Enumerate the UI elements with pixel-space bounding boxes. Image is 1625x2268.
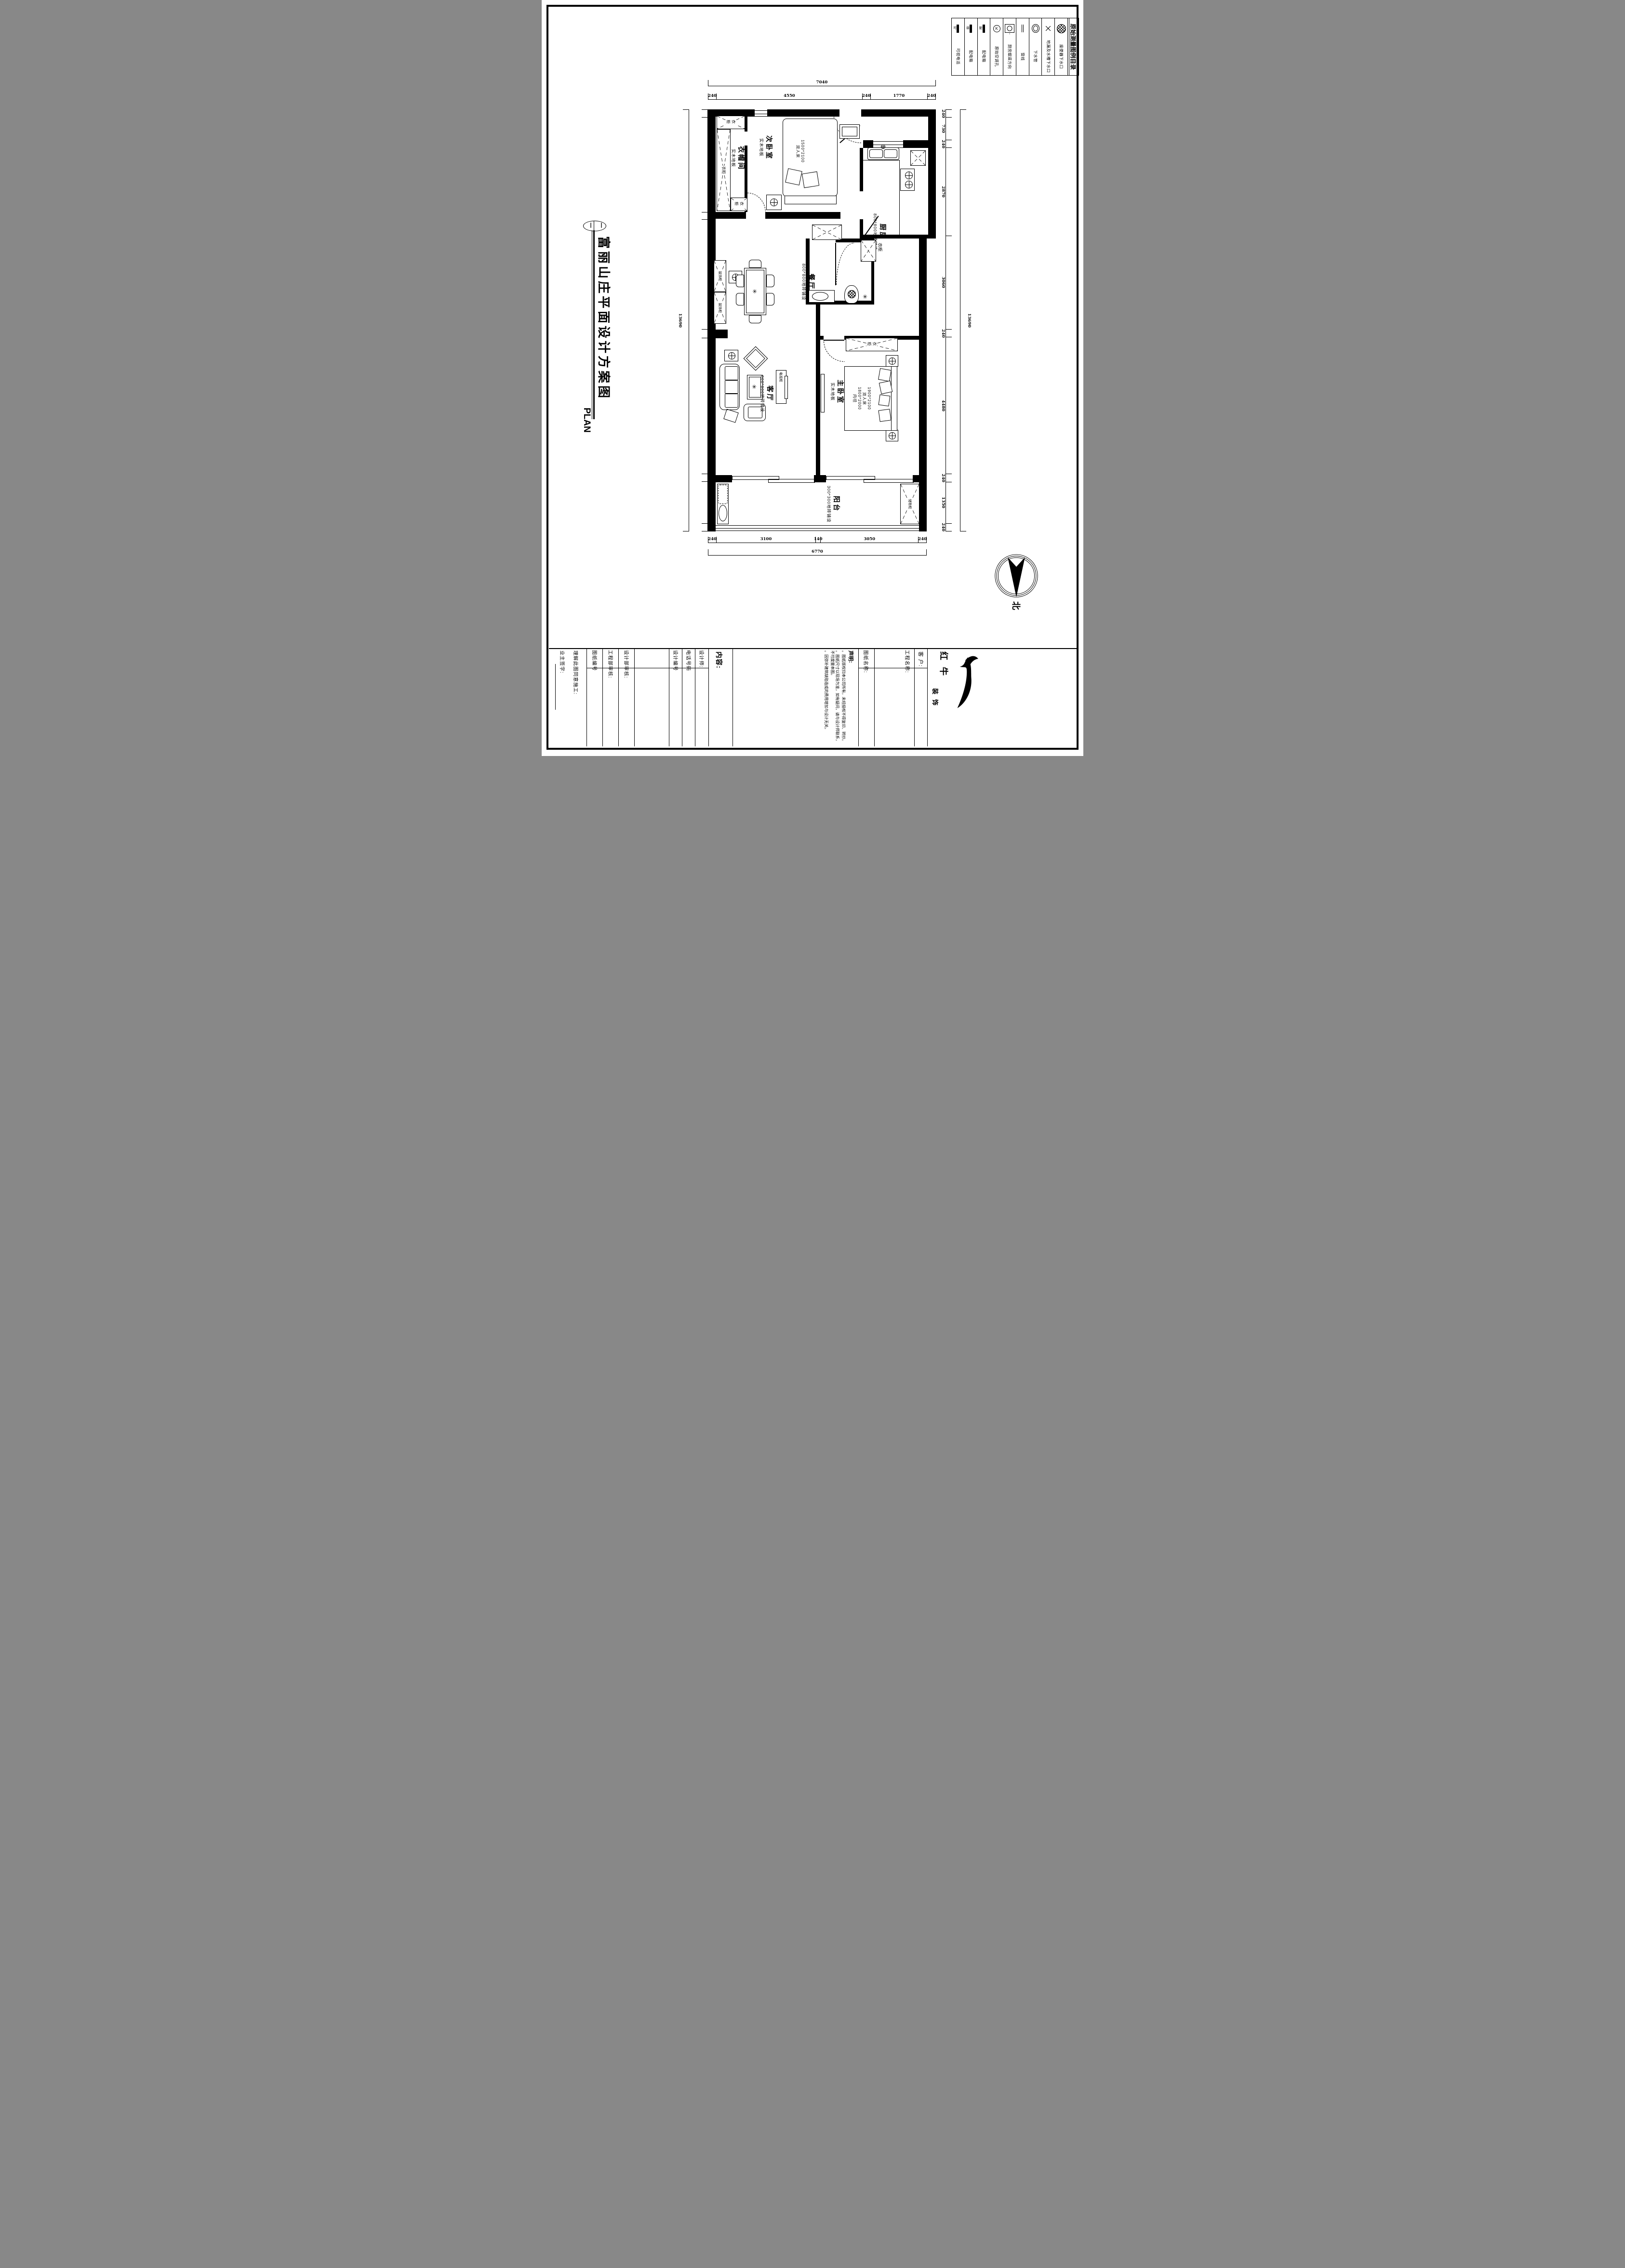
page-title: 富丽山庄平面设计方案图 — [596, 236, 613, 400]
legend-items: 座便器下水口地漏及水槽下水口下水管窗线↓厨房烟道方向K原始空调孔配配电箱弱配电箱… — [952, 18, 1067, 75]
legend-item-label: 窗线 — [1020, 39, 1025, 74]
toilet — [844, 285, 859, 304]
room-floor: 800*800地砖铺设 — [801, 254, 807, 309]
legend: 座便器下水口地漏及水槽下水口下水管窗线↓厨房烟道方向K原始空调孔配配电箱弱配电箱… — [951, 18, 1079, 76]
wall — [861, 109, 936, 117]
titleblock-divider — [669, 648, 669, 746]
power-box-icon: 配 — [978, 18, 990, 39]
lamp-icon — [889, 432, 896, 439]
sliding-door-panel — [864, 479, 914, 483]
speaker-box — [724, 350, 738, 361]
flue-shaft — [910, 150, 926, 166]
sofa-cushion — [725, 366, 738, 381]
dim-segment: 13690 — [960, 109, 966, 531]
wall — [767, 109, 839, 117]
wall — [860, 148, 863, 191]
dim-label: 240 — [862, 93, 871, 98]
storage-cabinet: 储物柜 — [900, 484, 919, 524]
client-label: 客 户: — [917, 651, 925, 667]
drain-pipe-icon — [1029, 18, 1042, 39]
pillow — [802, 172, 819, 188]
speaker-icon — [728, 352, 735, 359]
room-floor: 实木地板 — [759, 128, 764, 167]
titleblock-divider — [682, 648, 682, 746]
washing-machine — [718, 485, 728, 504]
dim-segment: 13690 — [683, 109, 689, 531]
dim-segment: 6770 — [708, 549, 927, 556]
room-floor: 实木地板 — [830, 368, 836, 415]
dim-label: 240 — [941, 523, 946, 532]
wardrobe-cabinet: 衣柜 — [717, 129, 731, 211]
balcony-window — [716, 525, 919, 531]
dim-segment: 240 — [708, 537, 716, 543]
dim-segment: 3060 — [946, 236, 952, 329]
burner-icon — [905, 181, 913, 188]
legend-item-label: 配电箱 — [981, 39, 986, 74]
dim-segment: 3050 — [820, 537, 918, 543]
centerpiece-icon: ✳ — [752, 289, 757, 294]
dim-label: 7040 — [816, 80, 828, 85]
dim-label: 4480 — [941, 400, 946, 411]
kitchen-sink — [867, 147, 899, 160]
titleblock-divider — [708, 648, 709, 746]
nightstand — [886, 430, 898, 441]
pillow — [878, 409, 891, 422]
owner-sign-label: 业主签字: — [559, 650, 566, 674]
legend-item: 弱配电箱 — [965, 18, 978, 75]
legend-item-label: 可视电话 — [955, 39, 960, 74]
legend-item-label: 配电箱 — [968, 39, 973, 74]
dim-label: 240 — [918, 537, 927, 542]
pillow — [879, 381, 892, 394]
declaration-heading: 声明: — [847, 650, 855, 745]
sink-bowl — [884, 149, 897, 158]
dining-chair — [749, 260, 761, 268]
legend-item-label: 厨房烟道方向 — [1007, 39, 1012, 74]
kitchen-window — [873, 141, 903, 148]
titleblock-divider — [858, 648, 859, 746]
dining-chair — [749, 315, 761, 323]
flower-icon: ✳ — [752, 384, 757, 390]
dim-label: 240 — [941, 474, 946, 482]
headboard-line — [891, 367, 892, 430]
wall — [860, 219, 863, 239]
dining-table: ✳ — [744, 268, 766, 315]
tv-cabinet-label: 电视柜 — [778, 372, 783, 382]
wardrobe-label: 衣柜 — [866, 342, 877, 348]
page-subtitle: PLAN — [581, 408, 592, 433]
dim-segment: 240 — [708, 93, 716, 100]
bed-inner-note: 内径 — [852, 372, 857, 425]
dim-top-total: 7040 — [708, 80, 936, 86]
storage-cabinet-label: 储物柜 — [907, 499, 912, 510]
signature-line — [555, 664, 556, 710]
dim-segment: 240 — [946, 329, 952, 337]
dim-label: 240 — [927, 93, 936, 98]
room-name: 次卧室 — [764, 128, 774, 167]
dim-segment: 240 — [946, 474, 952, 481]
cloakroom-label: 衣帽间 实木地板 — [731, 139, 746, 177]
faucet-icon — [881, 145, 885, 149]
counter-edge — [899, 160, 900, 235]
title-bubble-right: 一 — [598, 223, 605, 228]
project-name-label: 工程名称: — [904, 650, 911, 673]
wall-left — [708, 117, 716, 531]
dim-segment: 3100 — [716, 537, 815, 543]
tv-living — [785, 376, 788, 399]
wardrobe-label: 衣柜 — [726, 119, 736, 126]
dim-label: 3050 — [864, 537, 875, 542]
video-phone-icon: 可 — [952, 18, 964, 39]
dim-label: 1770 — [893, 93, 905, 98]
dining-chair — [736, 293, 744, 305]
dim-segment: 240 — [702, 474, 708, 481]
deco-cabinet-label: 装饰柜 — [718, 303, 722, 314]
nightstand — [766, 195, 782, 210]
dining-chair — [766, 275, 774, 287]
deco-cabinet: 装饰柜 — [714, 260, 726, 292]
dim-segment: 3590 — [702, 219, 708, 329]
dim-segment: 280 — [702, 329, 708, 338]
declaration-bullet: 。因弥补建筑缺陷造成的费用增加与设计无关。 — [824, 650, 828, 745]
basin-counter — [809, 290, 835, 303]
mop-basin — [719, 505, 727, 521]
logo-bull-icon — [949, 654, 979, 714]
toilet-drain-icon — [1055, 18, 1067, 39]
dim-left-chain: 2403090220359028044402401350240 — [702, 109, 707, 531]
titleblock-divider — [618, 648, 619, 746]
dim-segment: 240 — [862, 93, 870, 100]
sofa-cushion — [725, 380, 738, 394]
title-bubble-left: 一 — [587, 223, 595, 228]
living-label: 客厅 800*800地砖铺设 — [759, 370, 775, 417]
basin — [812, 292, 828, 301]
lamp-icon — [770, 199, 778, 206]
designer-label: 设计师: — [698, 650, 706, 668]
dim-label: 3100 — [760, 537, 772, 542]
titleblock-divider — [695, 648, 695, 746]
shaft-cabinet — [861, 240, 876, 262]
dim-label: 3060 — [941, 277, 946, 289]
dim-bottom-total: 6770 — [708, 549, 927, 555]
bed-master-size-label: 1900*2100 双人床 1800*2000 内径 — [852, 372, 871, 425]
dim-segment: 240 — [702, 109, 708, 117]
dim-segment: 240 — [946, 523, 952, 531]
wall-partition — [816, 305, 820, 482]
room-name: 主卧室 — [836, 368, 845, 415]
legend-item-label: 地漏及水槽下水口 — [1046, 39, 1051, 74]
legend-item: 下水管 — [1029, 18, 1042, 75]
deco-cabinet: 装饰柜 — [714, 292, 726, 324]
lamp-icon — [889, 358, 896, 365]
drawing-sheet: 座便器下水口地漏及水槽下水口下水管窗线↓厨房烟道方向K原始空调孔配配电箱弱配电箱… — [542, 0, 1083, 756]
legend-title-text: 原始测量图例目录 — [1069, 24, 1078, 70]
second-bedroom-label: 次卧室 实木地板 — [759, 128, 774, 167]
legend-item-label: 原始空调孔 — [994, 39, 999, 74]
dim-segment: 1350 — [946, 482, 952, 523]
dim-segment: 240 — [918, 537, 927, 543]
wall-kitchen-top — [863, 140, 873, 148]
room-floor: 实木地板 — [731, 139, 736, 177]
sink-bowl — [869, 149, 883, 158]
room-floor: 800*800地砖铺设 — [759, 370, 765, 417]
sofa — [719, 364, 740, 410]
wardrobe-label: 衣柜 — [734, 201, 745, 208]
dim-label: 730 — [941, 124, 946, 133]
dim-label: 240 — [941, 140, 946, 148]
weak-power-box-icon: 弱 — [965, 18, 977, 39]
dim-segment: 4550 — [716, 93, 862, 100]
dim-bottom-chain: 24031001403050240 — [708, 537, 927, 543]
original-ac-hole-icon: K — [990, 18, 1003, 39]
legend-item: K原始空调孔 — [990, 18, 1003, 75]
tv-master — [821, 374, 825, 412]
pillow — [878, 368, 892, 382]
dim-segment: 240 — [946, 109, 952, 117]
dim-left-total: 13690 — [683, 109, 689, 531]
dim-segment: 140 — [815, 537, 820, 543]
north-label: 北 — [1010, 601, 1023, 610]
dim-segment: 240 — [946, 140, 952, 147]
wardrobe-cabinet: 衣柜 — [846, 338, 898, 351]
balcony-label: 阳台 300*300地砖铺设 — [826, 485, 841, 523]
wall — [820, 336, 824, 340]
wall-balcony — [814, 475, 826, 482]
window — [755, 110, 767, 117]
dim-segment: 240 — [702, 523, 708, 531]
bed-inner-size: 1800*2000 — [857, 372, 862, 425]
titleblock-divider — [874, 648, 875, 746]
wall — [765, 212, 840, 219]
wall-balcony — [716, 475, 732, 482]
titleblock-divider — [586, 648, 587, 746]
titleblock-divider — [733, 648, 733, 746]
room-floor: 300*300地砖铺设 — [826, 485, 832, 523]
titleblock-divider — [602, 648, 603, 746]
dim-segment: 220 — [702, 212, 708, 219]
titleblock-divider — [914, 648, 915, 746]
dim-segment: 4480 — [946, 337, 952, 474]
wall — [716, 212, 746, 219]
nightstand — [886, 355, 898, 367]
wardrobe-label: 衣柜 — [877, 243, 883, 252]
title-underline-thick — [593, 230, 595, 419]
bed-type: 双人床 — [862, 372, 867, 425]
legend-item: ↓厨房烟道方向 — [1003, 18, 1016, 75]
wall-right-upper — [928, 117, 936, 239]
counter-edge — [863, 160, 900, 160]
logo-text-2: 装饰 — [931, 688, 940, 710]
bed-type: 双人床 — [795, 129, 800, 173]
deco-cabinet-label: 装饰柜 — [718, 271, 722, 282]
legend-item-label: 下水管 — [1033, 39, 1038, 74]
floor-sink-drain-icon — [1042, 18, 1054, 39]
legend-item: 可可视电话 — [952, 18, 965, 75]
dim-right-chain: 2407302402870306024044802401350240 — [946, 109, 951, 531]
bed2-size-label: 1500*2100 双人床 — [795, 129, 805, 173]
room-name: 衣帽间 — [736, 139, 746, 177]
dim-label: 13690 — [967, 313, 972, 328]
wardrobe-cabinet: 衣柜 — [731, 198, 747, 211]
titleblock-divider — [634, 648, 635, 746]
titleblock-top-line — [549, 648, 1077, 649]
gas-stove — [900, 169, 915, 191]
dim-segment: 4440 — [702, 338, 708, 474]
titleblock-divider — [927, 648, 928, 746]
toilet-drain-icon — [848, 290, 856, 298]
wall-right-lower — [919, 239, 927, 531]
north-arrow — [994, 553, 1039, 598]
hall-cabinet — [812, 225, 842, 240]
dim-segment: 7040 — [708, 80, 936, 86]
legend-title: 原始测量图例目录 — [1067, 18, 1079, 75]
dim-segment: 3090 — [702, 117, 708, 212]
plant-icon: ✳ — [863, 294, 867, 300]
window-line-icon — [1016, 18, 1029, 39]
bed-bench — [785, 196, 837, 204]
drawing-name-label: 图纸名称: — [863, 650, 870, 673]
dim-segment: 240 — [927, 93, 936, 100]
dim-label: 240 — [708, 537, 717, 542]
legend-item: 配配电箱 — [978, 18, 991, 75]
declaration: 声明: 。图纸版权归本公司所有，未经授权不得复印、转抄。 。图纸尺寸以现场为准，… — [735, 650, 856, 745]
dim-segment: 1350 — [702, 481, 708, 523]
dresser-top — [842, 127, 857, 136]
dim-label: 240 — [941, 109, 946, 118]
legend-item: 地漏及水槽下水口 — [1042, 18, 1055, 75]
master-bedroom-label: 主卧室 实木地板 — [830, 368, 845, 415]
bed-size: 1900*2100 — [867, 372, 871, 425]
legend-item: 窗线 — [1016, 18, 1029, 75]
eng-review-label: 工程部审核: — [607, 650, 614, 678]
sofa-cushion — [725, 393, 738, 408]
content-label: 内容: — [714, 651, 724, 669]
declaration-bullet: 。图纸尺寸以现场为准，如有疑问，请与设计师联系，不可度量本图。 — [830, 650, 839, 745]
dim-label: 240 — [708, 93, 717, 98]
dining-chair — [736, 275, 744, 287]
dining-chair — [766, 293, 774, 305]
dim-segment: 1770 — [870, 93, 927, 100]
phone-label: 电话号码 — [685, 650, 693, 671]
dim-label: 2870 — [941, 186, 946, 198]
dim-label: 4550 — [784, 93, 795, 98]
dim-label: 13690 — [678, 313, 682, 328]
dim-right-total: 13690 — [960, 109, 966, 531]
dim-label: 240 — [941, 329, 946, 338]
room-name: 客厅 — [765, 370, 775, 417]
room-name: 阳台 — [832, 485, 841, 523]
dresser — [839, 124, 860, 139]
wall-kitchen-top — [903, 140, 936, 148]
wardrobe-label: 衣柜 — [721, 166, 726, 174]
legend-item: 座便器下水口 — [1055, 18, 1067, 75]
agree-label: 理解此图同意施工: — [573, 650, 580, 695]
burner-icon — [905, 172, 913, 179]
dim-label: 1350 — [941, 497, 946, 508]
dim-segment: 2870 — [946, 147, 952, 235]
wall-jog — [716, 330, 728, 338]
legend-item-label: 座便器下水口 — [1059, 39, 1064, 74]
pillow — [879, 395, 891, 407]
wardrobe-cabinet: 衣柜 — [717, 116, 745, 129]
dim-top-chain: 24045502401770240 — [708, 93, 936, 99]
bed-size: 1500*2100 — [800, 129, 805, 173]
dim-label: 6770 — [812, 549, 823, 554]
title-underline-thin — [592, 230, 592, 419]
kitchen-flue-direction-icon: ↓ — [1003, 18, 1016, 39]
design-no-label: 设计编号 — [672, 650, 679, 671]
drawing-no-label: 图纸编号 — [591, 650, 599, 671]
declaration-bullet: 。图纸版权归本公司所有，未经授权不得复印、转抄。 — [841, 650, 846, 745]
design-review-label: 设计部审核: — [623, 650, 630, 678]
sliding-door-panel — [768, 479, 815, 483]
dim-segment: 730 — [946, 117, 952, 140]
